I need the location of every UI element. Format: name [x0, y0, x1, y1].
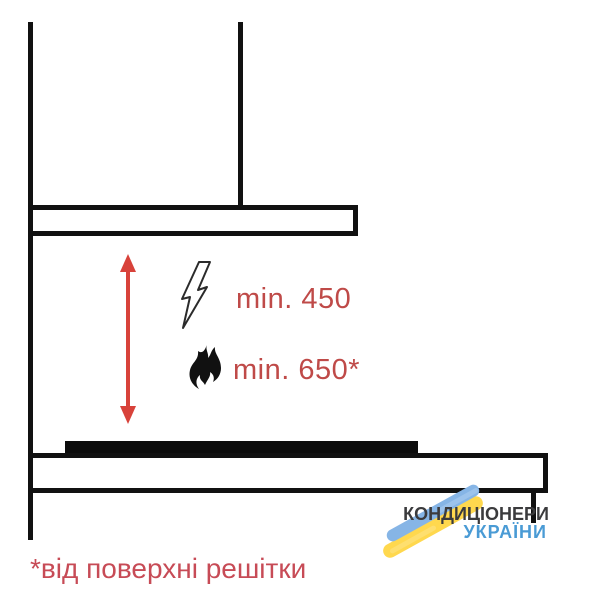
hood-clearance-diagram: min. 450 min. 650* КОНДИЦІОНЕРИ УКРАЇНИ …: [0, 0, 600, 600]
lightning-icon: [176, 260, 212, 335]
double-arrow-icon: [117, 253, 139, 430]
electric-clearance-label: min. 450: [236, 285, 351, 314]
gas-clearance-label: min. 650*: [233, 356, 360, 385]
hood-canopy: [28, 205, 358, 236]
flame-icon: [185, 344, 225, 401]
footnote-text: *від поверхні решітки: [30, 553, 306, 585]
brand-name-line2: УКРАЇНИ: [463, 522, 547, 543]
brand-logo: КОНДИЦІОНЕРИ УКРАЇНИ: [383, 494, 551, 550]
duct-line: [238, 22, 243, 205]
cooktop-hob: [65, 441, 418, 453]
